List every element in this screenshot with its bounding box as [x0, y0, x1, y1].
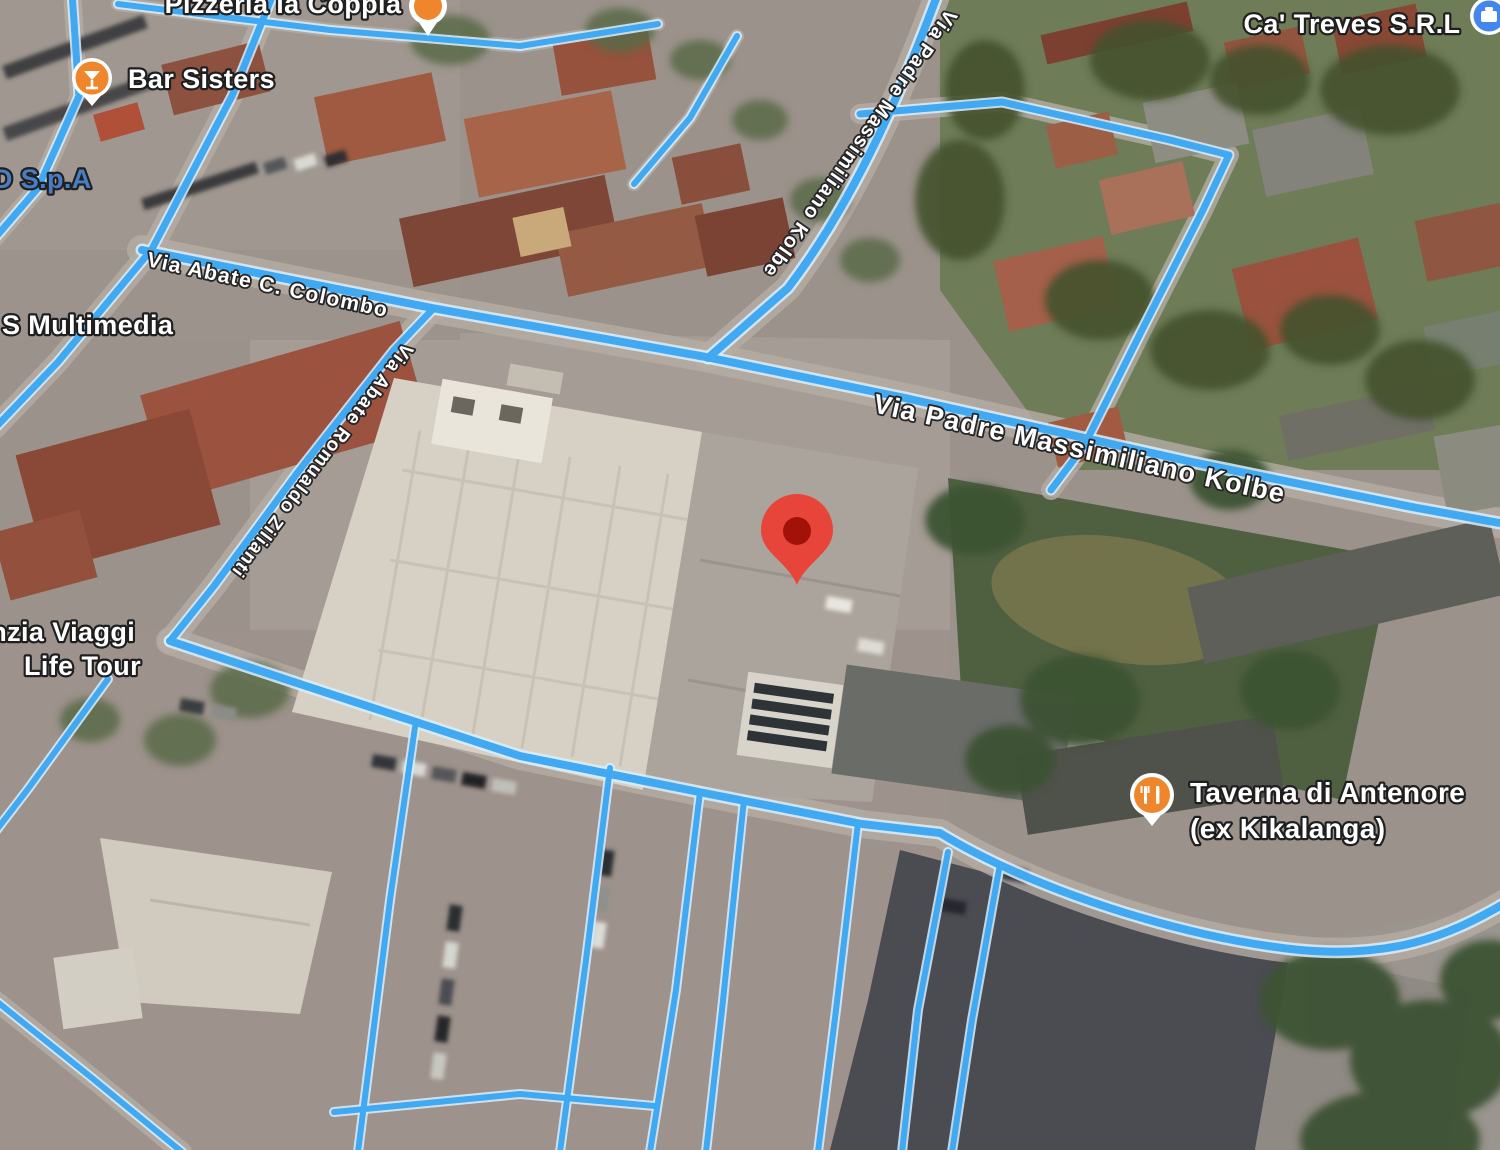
poi-label-ca-treves: Ca' Treves S.R.L	[1244, 9, 1461, 39]
poi-label-bar-sisters: Bar Sisters	[128, 64, 275, 94]
poi-label-taverna-line1: Taverna di Antenore	[1190, 777, 1465, 808]
poi-label-md-spa: MD S.p.A	[0, 164, 92, 194]
pin-inner-circle	[783, 517, 811, 545]
satellite-map-viewport[interactable]: Via Abate C. Colombo Via Padre Massimili…	[0, 0, 1500, 1150]
map-canvas[interactable]: Via Abate C. Colombo Via Padre Massimili…	[0, 0, 1500, 1150]
poi-label-s-multimedia: S Multimedia	[2, 310, 174, 340]
poi-label-taverna-line2: (ex Kikalanga)	[1190, 813, 1385, 844]
poi-s-multimedia[interactable]: S Multimedia	[2, 310, 174, 340]
poi-label-pizzeria: Pizzeria la Coppia	[165, 0, 402, 19]
poi-label-agenzia-line1: Agenzia Viaggi	[0, 617, 135, 647]
poi-label-agenzia-line2: Life Tour	[24, 651, 141, 681]
poi-md-spa[interactable]: MD S.p.A	[0, 164, 92, 194]
